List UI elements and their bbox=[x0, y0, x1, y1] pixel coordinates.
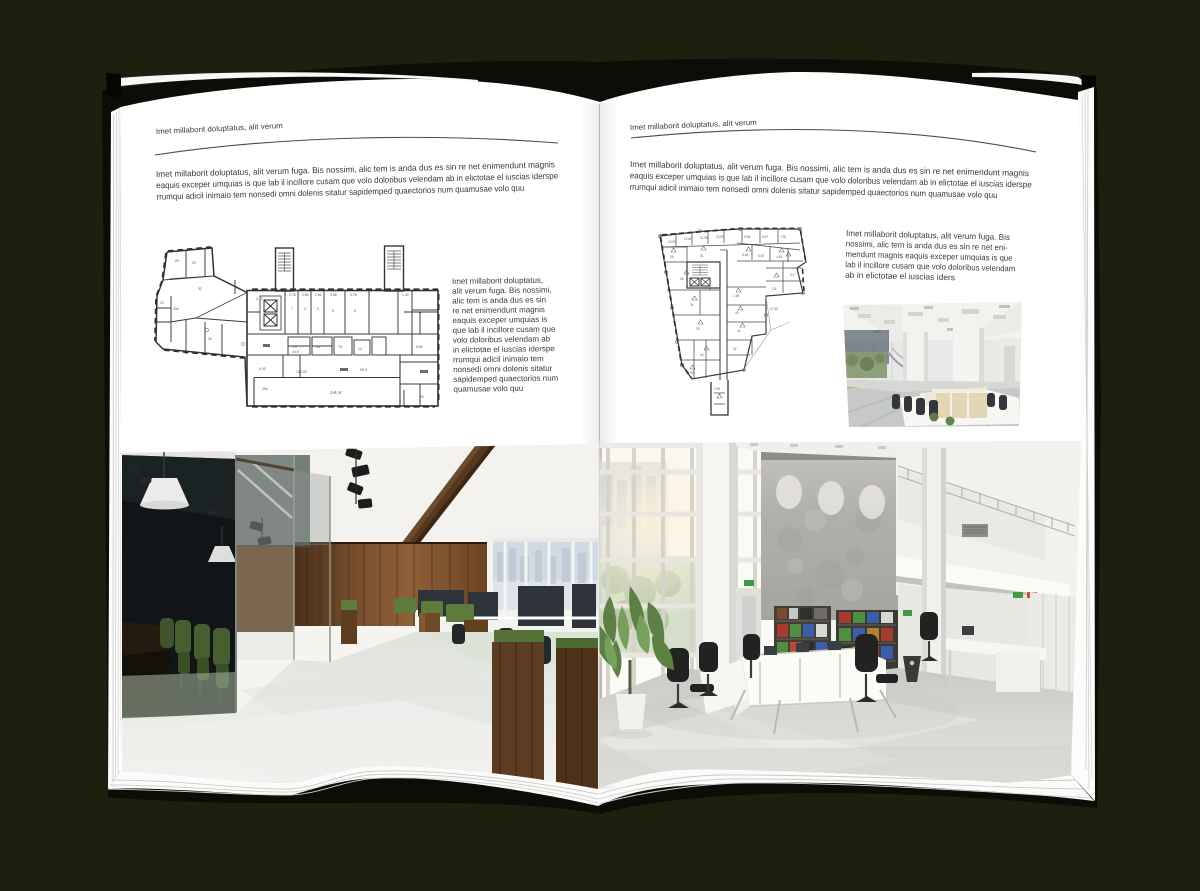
svg-text:3.78: 3.78 bbox=[350, 293, 357, 297]
svg-text:2.90: 2.90 bbox=[714, 387, 720, 391]
svg-text:10.90: 10.90 bbox=[716, 235, 724, 239]
svg-text:40: 40 bbox=[735, 311, 739, 315]
svg-text:rrumqui adicil inimaio tem: rrumqui adicil inimaio tem bbox=[453, 354, 544, 364]
svg-text:12.86: 12.86 bbox=[684, 237, 692, 241]
svg-text:8.97: 8.97 bbox=[762, 235, 768, 239]
svg-text:4: 4 bbox=[317, 307, 319, 311]
svg-text:5.43: 5.43 bbox=[259, 367, 266, 371]
svg-text:32: 32 bbox=[198, 287, 202, 291]
svg-text:26: 26 bbox=[208, 337, 212, 341]
svg-text:44.5: 44.5 bbox=[292, 350, 299, 354]
svg-text:28: 28 bbox=[670, 255, 674, 259]
svg-text:3.9: 3.9 bbox=[790, 273, 795, 277]
svg-text:31: 31 bbox=[700, 254, 704, 258]
svg-text:13.90: 13.90 bbox=[668, 240, 676, 244]
svg-text:re net enimendunt magnis: re net enimendunt magnis bbox=[452, 305, 545, 315]
svg-text:2.76: 2.76 bbox=[289, 293, 296, 297]
svg-text:1.98: 1.98 bbox=[733, 294, 739, 298]
svg-text:27.96: 27.96 bbox=[686, 371, 694, 375]
svg-text:17.45: 17.45 bbox=[770, 307, 778, 311]
svg-text:2-й эт: 2-й эт bbox=[330, 390, 341, 395]
svg-text:9.98: 9.98 bbox=[744, 235, 750, 239]
svg-text:que lab il incillore cusam que: que lab il incillore cusam que bbox=[453, 325, 556, 335]
svg-text:9: 9 bbox=[332, 309, 334, 313]
svg-text:6.98: 6.98 bbox=[742, 253, 748, 257]
svg-text:7.90: 7.90 bbox=[780, 235, 786, 239]
svg-text:nonsedi omni dolenis sitatur: nonsedi omni dolenis sitatur bbox=[453, 364, 553, 374]
svg-text:33: 33 bbox=[696, 327, 700, 331]
svg-text:3: 3 bbox=[304, 307, 306, 311]
svg-text:Imet millaborit doluptatus,: Imet millaborit doluptatus, bbox=[452, 276, 543, 286]
svg-text:quamusae volo quu: quamusae volo quu bbox=[453, 384, 523, 394]
svg-text:3.86: 3.86 bbox=[330, 293, 337, 297]
svg-text:30: 30 bbox=[700, 353, 704, 357]
svg-text:alit verum fuga. Bis nossimi,: alit verum fuga. Bis nossimi, bbox=[452, 285, 552, 295]
svg-text:volo doloribus velendam ab: volo doloribus velendam ab bbox=[453, 334, 551, 344]
svg-text:2.72: 2.72 bbox=[256, 297, 263, 301]
svg-text:41: 41 bbox=[737, 329, 741, 333]
svg-text:26: 26 bbox=[316, 345, 320, 349]
svg-text:8: 8 bbox=[354, 309, 356, 313]
svg-text:29: 29 bbox=[175, 259, 179, 263]
svg-text:5.54: 5.54 bbox=[416, 345, 423, 349]
svg-text:5.90: 5.90 bbox=[758, 254, 764, 258]
svg-text:296: 296 bbox=[173, 307, 179, 311]
svg-text:alic tem is anda dus es sin: alic tem is anda dus es sin bbox=[452, 295, 546, 305]
svg-text:25: 25 bbox=[192, 261, 196, 265]
svg-text:90: 90 bbox=[420, 395, 424, 399]
svg-text:42: 42 bbox=[733, 347, 737, 351]
svg-text:2.82: 2.82 bbox=[315, 293, 322, 297]
svg-text:4.95: 4.95 bbox=[776, 255, 782, 259]
svg-text:29a: 29a bbox=[262, 387, 268, 391]
svg-text:7: 7 bbox=[291, 307, 293, 311]
svg-text:142.00: 142.00 bbox=[296, 370, 307, 374]
svg-text:11.95: 11.95 bbox=[700, 236, 708, 240]
svg-text:2.80: 2.80 bbox=[302, 293, 309, 297]
svg-text:95.3: 95.3 bbox=[360, 368, 367, 372]
svg-text:1.40: 1.40 bbox=[402, 293, 409, 297]
svg-text:36: 36 bbox=[680, 277, 684, 281]
svg-text:in elictotae el iuscias idersp: in elictotae el iuscias iderspe bbox=[453, 344, 555, 354]
svg-text:24: 24 bbox=[160, 301, 164, 305]
svg-text:sapidemped quaectorios num: sapidemped quaectorios num bbox=[453, 374, 558, 384]
svg-text:14: 14 bbox=[358, 347, 362, 351]
svg-text:29: 29 bbox=[293, 345, 297, 349]
svg-text:6: 6 bbox=[419, 311, 421, 315]
svg-text:76: 76 bbox=[338, 345, 342, 349]
svg-text:eaquis exceper umquias is: eaquis exceper umquias is bbox=[452, 315, 547, 325]
svg-text:2.8: 2.8 bbox=[772, 287, 777, 291]
svg-text:34: 34 bbox=[690, 303, 694, 307]
